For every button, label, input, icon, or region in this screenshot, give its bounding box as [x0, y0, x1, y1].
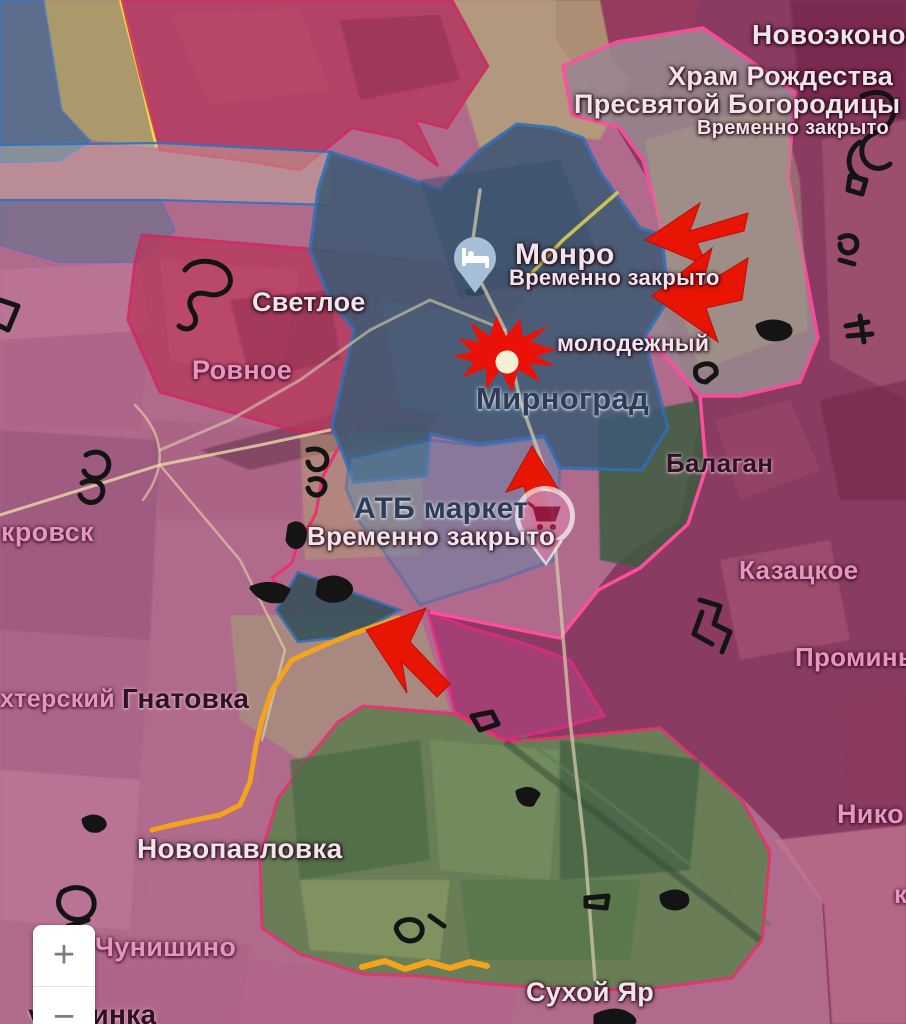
- poi-status-atb: Временно закрыто: [307, 523, 555, 550]
- poi-status-church: Временно закрыто: [697, 118, 889, 139]
- place-label-kazatskoe: Казацкое: [739, 557, 858, 584]
- poi-label-church-line1: Храм Рождества: [668, 62, 893, 90]
- map-screen: Новоэконом Храм Рождества Пресвятой Бого…: [0, 0, 906, 1024]
- zoom-controls: + −: [33, 925, 95, 1024]
- place-label-sukhoy-yar: Сухой Яр: [526, 978, 654, 1006]
- zoom-in-button[interactable]: +: [33, 925, 95, 986]
- place-label-shakhtersky-partial: хтерский: [0, 686, 115, 712]
- place-label-novopavlovka: Новопавловка: [137, 834, 343, 863]
- zoom-out-button[interactable]: −: [33, 987, 95, 1024]
- place-label-nikolaevka-partial: Нико: [837, 800, 904, 828]
- poi-label-atb: АТБ маркет: [354, 493, 528, 525]
- place-label-mirnograd: Мирноград: [476, 383, 649, 416]
- place-label-gnatovka: Гнатовка: [122, 684, 249, 713]
- place-label-novoekonomichne: Новоэконом: [752, 20, 906, 49]
- place-label-promin-partial: Проминь: [795, 644, 906, 671]
- place-label-chunishino: Чунишино: [95, 933, 236, 961]
- road-band: [0, 143, 330, 205]
- minus-icon: −: [53, 996, 75, 1024]
- place-label-k-partial: к: [894, 881, 906, 908]
- poi-status-monro: Временно закрыто: [509, 266, 720, 289]
- place-label-pokrovsk-partial: кровск: [1, 518, 94, 546]
- place-label-rovnoe: Ровное: [192, 356, 292, 384]
- place-label-balagan: Балаган: [666, 450, 773, 477]
- plus-icon: +: [53, 934, 75, 977]
- place-label-molodezhny: молодежный: [557, 331, 709, 355]
- place-label-svetloe: Светлое: [252, 288, 366, 316]
- poi-label-church-line2: Пресвятой Богородицы: [574, 90, 900, 118]
